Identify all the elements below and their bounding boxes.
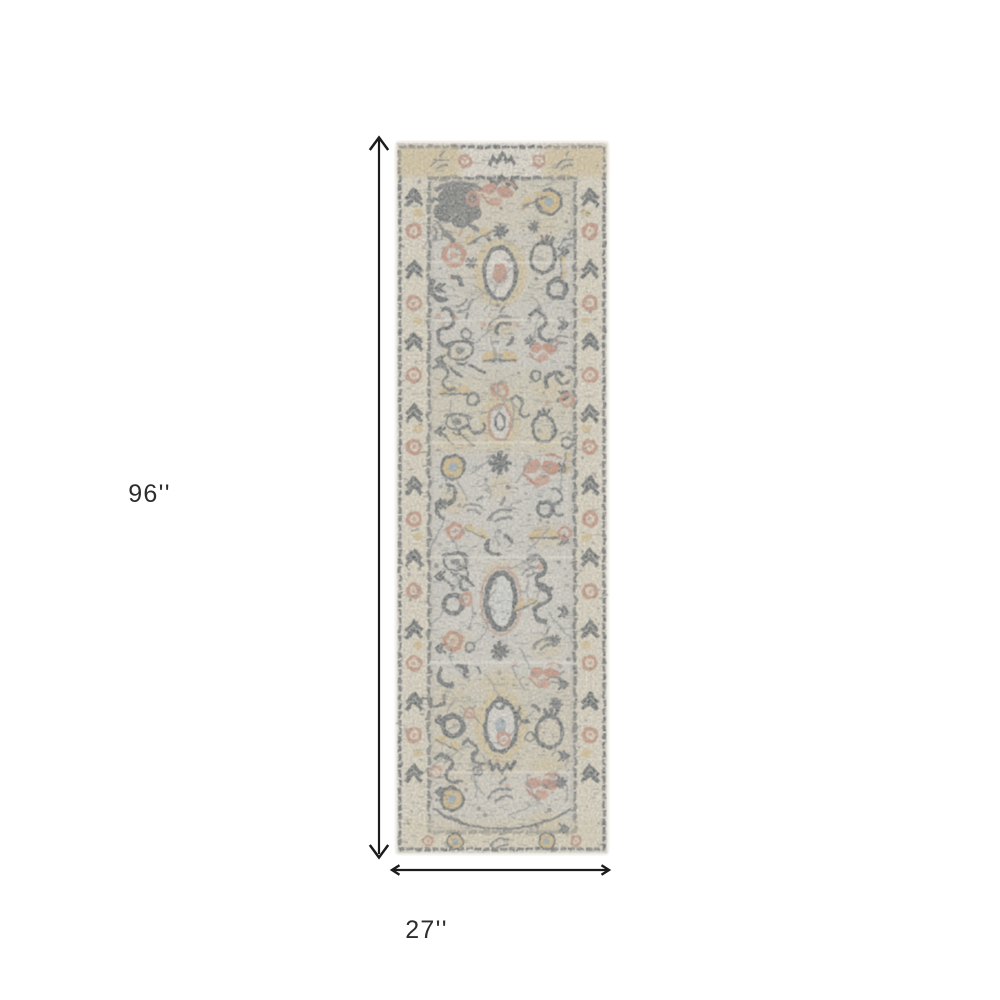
- svg-text:27'': 27'': [405, 916, 448, 944]
- svg-text:96'': 96'': [128, 480, 171, 508]
